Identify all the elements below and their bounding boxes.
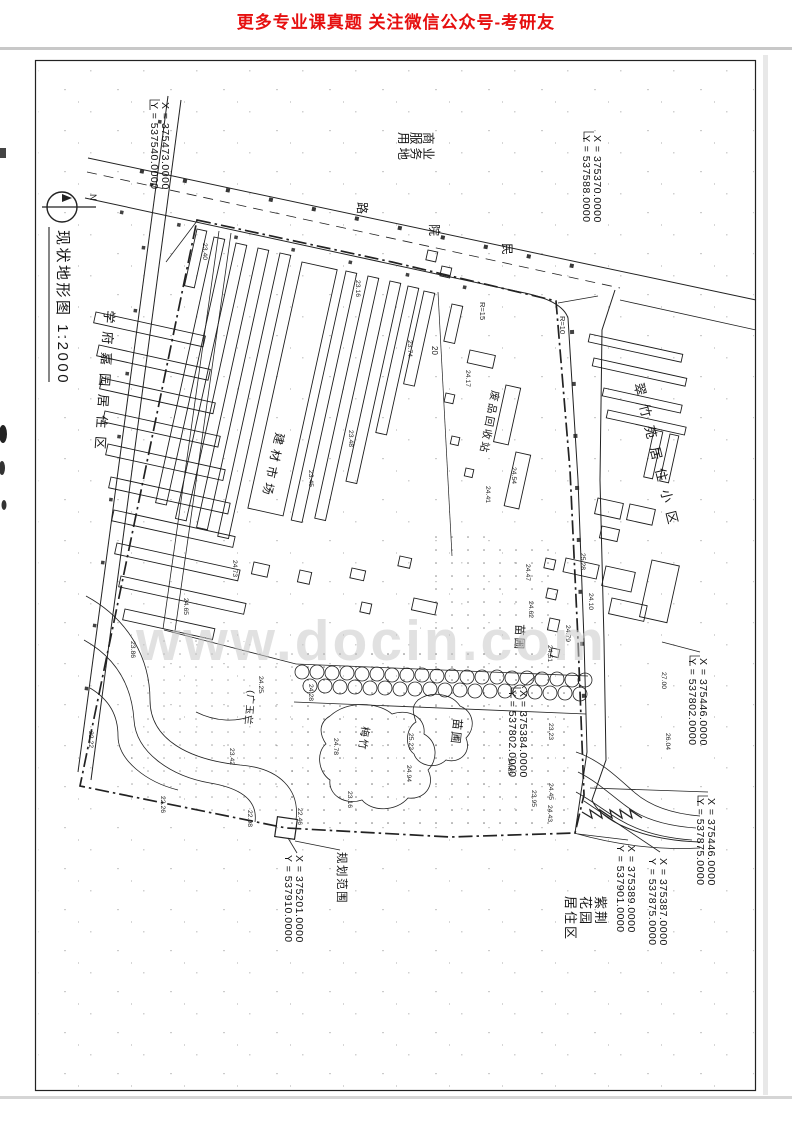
svg-text:紫荆: 紫荆 bbox=[593, 896, 608, 926]
svg-text:24.65: 24.65 bbox=[182, 598, 189, 615]
svg-text:24.45: 24.45 bbox=[547, 783, 554, 800]
svg-text:民: 民 bbox=[500, 243, 514, 255]
svg-text:用地: 用地 bbox=[396, 132, 410, 163]
svg-text:22.26: 22.26 bbox=[159, 796, 166, 813]
svg-text:23.40: 23.40 bbox=[201, 243, 208, 260]
svg-text:26.04: 26.04 bbox=[664, 733, 671, 750]
svg-text:24.17: 24.17 bbox=[464, 370, 471, 387]
svg-text:Y = 537875.0000: Y = 537875.0000 bbox=[646, 858, 658, 946]
svg-text:22.22: 22.22 bbox=[87, 731, 94, 748]
svg-text:23.86: 23.86 bbox=[129, 641, 136, 658]
svg-text:24.89: 24.89 bbox=[506, 758, 513, 775]
svg-text:24.43: 24.43 bbox=[546, 805, 553, 822]
svg-text:23.74: 23.74 bbox=[406, 340, 413, 357]
svg-text:Y = 537875.0000: Y = 537875.0000 bbox=[694, 798, 706, 886]
svg-text:Y = 537910.0000: Y = 537910.0000 bbox=[282, 855, 294, 943]
svg-text:22.46: 22.46 bbox=[296, 808, 303, 825]
svg-text:23.45: 23.45 bbox=[307, 470, 314, 487]
scan-artifact-bottom bbox=[0, 1096, 792, 1099]
svg-text:24.54: 24.54 bbox=[510, 467, 517, 484]
svg-text:23.95: 23.95 bbox=[530, 790, 537, 807]
svg-text:24.51: 24.51 bbox=[546, 645, 553, 662]
svg-text:23.16: 23.16 bbox=[354, 280, 361, 297]
svg-text:23.23: 23.23 bbox=[547, 723, 554, 740]
svg-text:24.28: 24.28 bbox=[307, 684, 314, 701]
svg-text:24.41: 24.41 bbox=[484, 486, 491, 503]
nursery-label-a: 苗圃 bbox=[512, 624, 526, 651]
svg-text:25.28: 25.28 bbox=[579, 553, 586, 570]
svg-text:24.10: 24.10 bbox=[587, 593, 594, 610]
scan-smudges bbox=[0, 148, 7, 510]
svg-text:24.78: 24.78 bbox=[332, 738, 339, 755]
svg-text:27.00: 27.00 bbox=[660, 672, 667, 689]
svg-text:路: 路 bbox=[355, 202, 370, 214]
svg-text:24.47: 24.47 bbox=[524, 564, 531, 581]
svg-text:24.25: 24.25 bbox=[257, 676, 264, 693]
svg-text:院: 院 bbox=[427, 224, 441, 236]
survey-map: N 现状地形图 1:2000 bbox=[0, 0, 792, 1122]
svg-text:Y = 537540.0000: Y = 537540.0000 bbox=[148, 102, 160, 190]
svg-text:24.73: 24.73 bbox=[231, 560, 238, 577]
svg-text:22.98: 22.98 bbox=[246, 810, 253, 827]
commercial-land-label: 商业 服务 用地 bbox=[396, 132, 436, 163]
svg-text:居住区: 居住区 bbox=[563, 896, 578, 941]
title-text: 现状地形图 1:2000 bbox=[54, 230, 71, 385]
svg-text:Y = 537588.0000: Y = 537588.0000 bbox=[580, 135, 592, 223]
svg-text:24.79: 24.79 bbox=[564, 625, 571, 642]
radius-label-1: R=15 bbox=[478, 302, 487, 320]
svg-text:23.42: 23.42 bbox=[228, 748, 235, 765]
svg-text:23.16: 23.16 bbox=[346, 791, 353, 808]
svg-text:23.48: 23.48 bbox=[347, 430, 354, 447]
svg-text:花园: 花园 bbox=[578, 896, 593, 926]
svg-text:25.22: 25.22 bbox=[407, 733, 414, 750]
scan-artifact-right bbox=[763, 55, 768, 1095]
svg-text:Y = 537802.0000: Y = 537802.0000 bbox=[686, 658, 698, 746]
svg-text:24.94: 24.94 bbox=[405, 765, 412, 782]
svg-text:24.62: 24.62 bbox=[527, 601, 534, 618]
road-width-label: 20 bbox=[430, 346, 439, 355]
svg-text:规划范围: 规划范围 bbox=[335, 852, 349, 904]
radius-label-2: R=10 bbox=[558, 316, 567, 334]
svg-text:Y = 537901.0000: Y = 537901.0000 bbox=[614, 845, 626, 933]
